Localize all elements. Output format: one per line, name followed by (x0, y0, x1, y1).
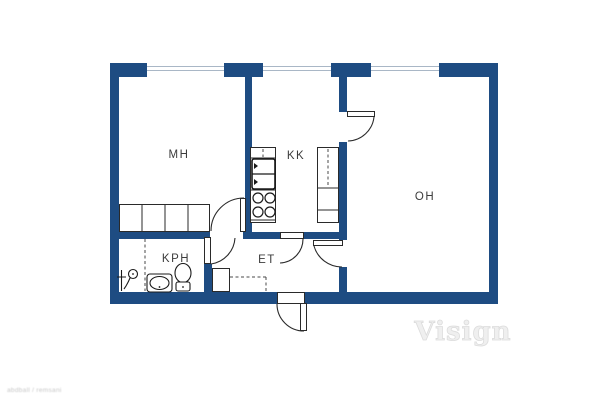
window-pane-line (147, 66, 224, 67)
door-leaf-et-oh (313, 240, 343, 246)
door-leaf-mh (240, 198, 246, 232)
wall-et-kk-right (304, 232, 339, 239)
door-leaf-kk-oh (347, 111, 375, 117)
window-pane-line (371, 66, 439, 67)
room-label-kk: KK (276, 150, 316, 162)
wall-kph-et-stub (204, 264, 212, 292)
kitchen-counter-left (250, 147, 276, 223)
fine-print-credit: abdball / remsani (7, 387, 62, 394)
appliance-reservation-dashed-line (230, 277, 266, 291)
floor-plan: MH KK OH KPH ET Visign abdball / remsani (0, 0, 600, 400)
top-wall-segment-2 (224, 63, 263, 77)
bottom-wall-left (110, 292, 277, 304)
window-mh (147, 63, 224, 73)
wardrobe-icon (119, 204, 210, 232)
window-pane-line (371, 70, 439, 71)
shower-icon (117, 270, 138, 292)
wall-kk-oh-mid (339, 142, 347, 240)
visign-watermark: Visign (413, 317, 513, 347)
window-pane-line (263, 70, 331, 71)
right-wall (489, 63, 498, 304)
left-wall (110, 63, 119, 304)
door-leaf-front (300, 303, 307, 331)
wall-kph-mh (119, 232, 210, 239)
toilet-icon (175, 264, 191, 292)
kitchen-counter-right (317, 147, 339, 223)
wall-et-oh-lower (339, 267, 347, 292)
window-pane-line (147, 70, 224, 71)
sink-icon (147, 274, 172, 292)
room-label-oh: OH (405, 191, 445, 203)
room-label-et: ET (247, 254, 287, 266)
wall-kk-oh-upper (339, 73, 347, 112)
door-leaf-kph (204, 237, 211, 264)
room-label-mh: MH (159, 149, 199, 161)
window-kk (263, 63, 331, 73)
room-label-kph: KPH (151, 253, 201, 265)
door-leaf-kk (280, 232, 304, 239)
window-oh (371, 63, 439, 73)
closet-icon (212, 268, 230, 292)
window-pane-line (263, 66, 331, 67)
top-wall-segment-3 (331, 63, 371, 77)
wall-et-kk-left (243, 232, 280, 239)
bottom-wall-right (305, 292, 498, 304)
